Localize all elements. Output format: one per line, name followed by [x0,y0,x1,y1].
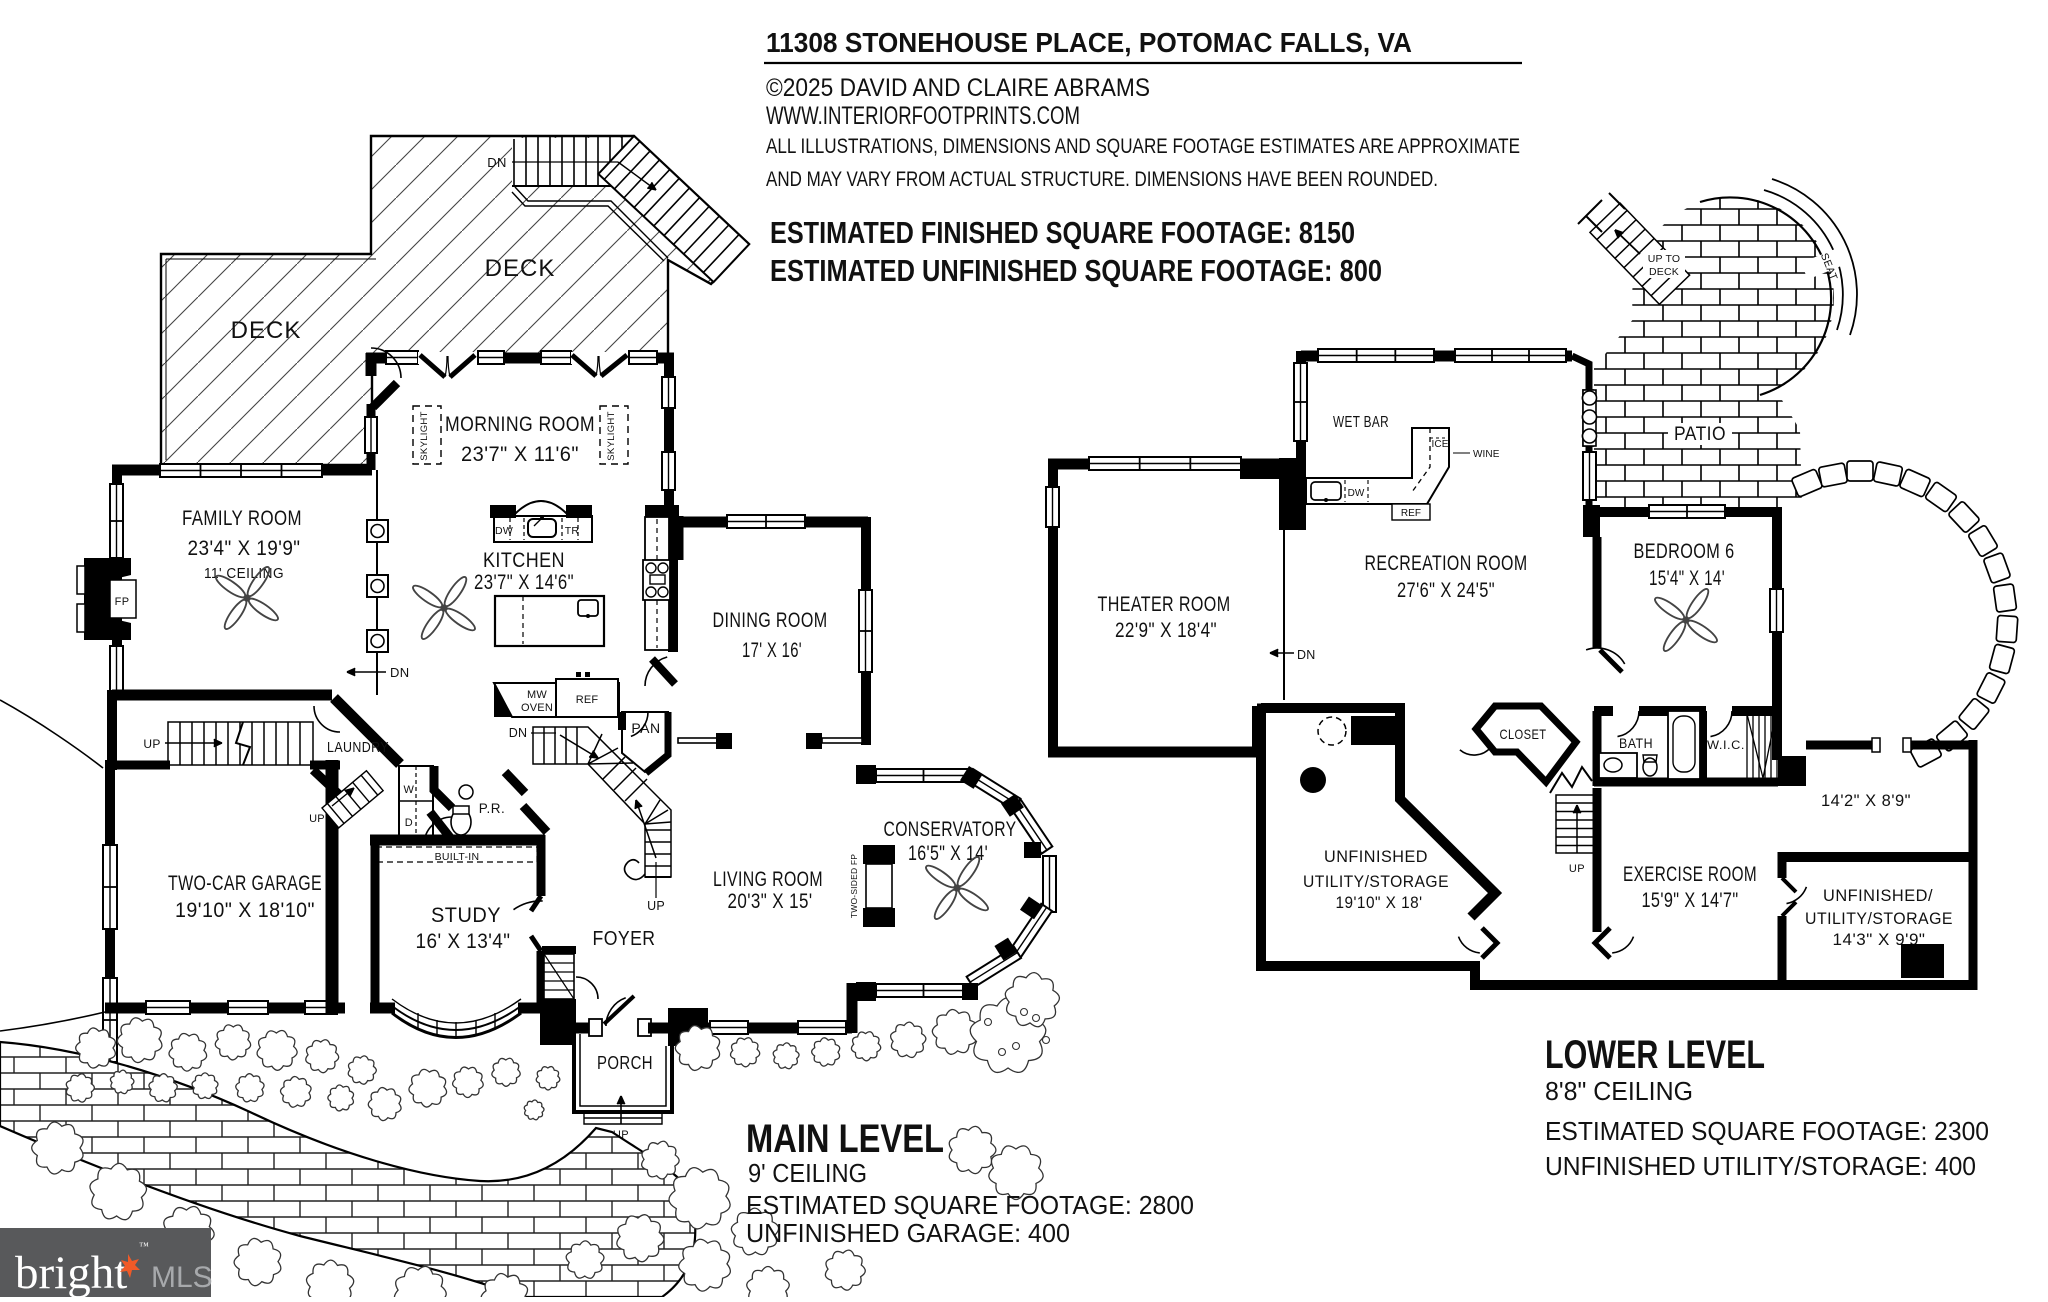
svg-text:UNFINISHED/: UNFINISHED/ [1823,887,1933,905]
svg-text:9' CEILING: 9' CEILING [748,1158,867,1188]
svg-text:ICE: ICE [1432,439,1449,450]
svg-text:FAMILY ROOM: FAMILY ROOM [182,507,302,530]
svg-text:W.I.C.: W.I.C. [1707,740,1745,752]
svg-text:WWW.INTERIORFOOTPRINTS.COM: WWW.INTERIORFOOTPRINTS.COM [766,102,1080,130]
svg-text:UNFINISHED UTILITY/STORAGE: 40: UNFINISHED UTILITY/STORAGE: 400 [1545,1151,1976,1181]
svg-text:©2025 DAVID AND CLAIRE ABRAMS: ©2025 DAVID AND CLAIRE ABRAMS [766,74,1150,102]
svg-text:CLOSET: CLOSET [1500,726,1547,742]
svg-text:LOWER LEVEL: LOWER LEVEL [1545,1033,1765,1077]
svg-text:bright: bright [15,1247,127,1297]
svg-text:16'5" X 14': 16'5" X 14' [908,842,988,865]
svg-text:UNFINISHED: UNFINISHED [1324,848,1428,866]
svg-text:PATIO: PATIO [1674,424,1726,445]
svg-text:DN: DN [487,155,506,170]
svg-text:SKYLIGHT: SKYLIGHT [419,411,430,460]
svg-text:WET BAR: WET BAR [1333,414,1389,431]
svg-text:27'6" X 24'5": 27'6" X 24'5" [1397,579,1495,602]
svg-text:LAUNDRY: LAUNDRY [327,739,389,756]
svg-text:RECREATION ROOM: RECREATION ROOM [1365,552,1528,575]
svg-text:KITCHEN: KITCHEN [483,549,565,572]
svg-text:P.R.: P.R. [479,801,506,816]
svg-text:15'4" X 14': 15'4" X 14' [1649,567,1725,590]
svg-text:THEATER ROOM: THEATER ROOM [1098,593,1231,616]
svg-text:OVEN: OVEN [521,702,553,714]
svg-text:TR: TR [565,525,580,537]
svg-text:UP: UP [309,813,325,825]
svg-text:DN: DN [390,665,409,680]
svg-text:W: W [404,784,415,796]
svg-text:16' X 13'4": 16' X 13'4" [416,930,511,953]
svg-text:DINING ROOM: DINING ROOM [713,609,828,632]
svg-text:AND MAY VARY FROM ACTUAL STRUC: AND MAY VARY FROM ACTUAL STRUCTURE. DIME… [766,167,1438,191]
svg-text:23'7" X 14'6": 23'7" X 14'6" [474,571,574,594]
svg-text:D: D [405,817,413,829]
svg-text:19'10" X 18'10": 19'10" X 18'10" [175,899,315,922]
svg-text:15'9" X 14'7": 15'9" X 14'7" [1642,889,1739,912]
svg-text:TWO-CAR GARAGE: TWO-CAR GARAGE [168,872,322,895]
svg-text:ESTIMATED FINISHED SQUARE FOOT: ESTIMATED FINISHED SQUARE FOOTAGE: 8150 [770,215,1355,250]
svg-text:DECK: DECK [485,255,556,282]
svg-text:EXERCISE ROOM: EXERCISE ROOM [1623,863,1757,886]
svg-text:DW: DW [495,525,513,537]
svg-text:ESTIMATED UNFINISHED SQUARE FO: ESTIMATED UNFINISHED SQUARE FOOTAGE: 800 [770,253,1382,288]
svg-text:UTILITY/STORAGE: UTILITY/STORAGE [1303,873,1449,891]
svg-text:23'4" X 19'9": 23'4" X 19'9" [188,537,301,560]
svg-text:UP: UP [1569,863,1585,875]
svg-text:MAIN LEVEL: MAIN LEVEL [746,1117,944,1161]
svg-text:UNFINISHED GARAGE: 400: UNFINISHED GARAGE: 400 [746,1218,1070,1248]
svg-text:17' X 16': 17' X 16' [742,639,802,662]
svg-text:DN: DN [1297,648,1315,662]
svg-text:BATH: BATH [1619,736,1653,751]
svg-text:TWO-SIDED FP: TWO-SIDED FP [849,854,859,918]
svg-text:19'10" X 18': 19'10" X 18' [1336,894,1423,912]
svg-text:WINE: WINE [1473,449,1500,460]
svg-text:™: ™ [139,1241,149,1252]
svg-text:FP: FP [115,596,130,608]
svg-text:ALL ILLUSTRATIONS, DIMENSIONS: ALL ILLUSTRATIONS, DIMENSIONS AND SQUARE… [766,134,1520,158]
svg-text:DW: DW [1348,488,1365,499]
svg-text:11308 STONEHOUSE PLACE, POTOMA: 11308 STONEHOUSE PLACE, POTOMAC FALLS, V… [766,27,1412,58]
svg-text:BUILT-IN: BUILT-IN [435,851,480,863]
svg-text:FOYER: FOYER [593,928,656,950]
svg-text:DECK: DECK [231,317,302,344]
svg-text:UP: UP [647,899,665,913]
svg-text:CONSERVATORY: CONSERVATORY [884,818,1017,841]
svg-text:DN: DN [509,726,527,740]
svg-text:MLS: MLS [151,1261,213,1294]
svg-text:LIVING ROOM: LIVING ROOM [713,868,823,891]
svg-text:8'8" CEILING: 8'8" CEILING [1545,1076,1693,1106]
svg-text:DECK: DECK [1649,266,1679,278]
svg-text:20'3" X 15': 20'3" X 15' [728,890,813,913]
svg-text:ESTIMATED SQUARE FOOTAGE: 2300: ESTIMATED SQUARE FOOTAGE: 2300 [1545,1116,1989,1146]
svg-text:UP TO: UP TO [1648,253,1681,265]
svg-text:REF: REF [576,694,599,706]
svg-text:PORCH: PORCH [597,1053,653,1073]
svg-text:UP: UP [143,737,160,751]
svg-text:BEDROOM 6: BEDROOM 6 [1634,540,1735,563]
svg-text:14'2" X 8'9": 14'2" X 8'9" [1821,792,1911,810]
svg-text:ESTIMATED SQUARE FOOTAGE: 2800: ESTIMATED SQUARE FOOTAGE: 2800 [746,1190,1194,1220]
svg-text:23'7" X 11'6": 23'7" X 11'6" [461,443,579,466]
svg-text:22'9" X 18'4": 22'9" X 18'4" [1115,619,1217,642]
svg-text:MW: MW [527,689,547,701]
svg-text:REF: REF [1401,508,1421,519]
svg-text:MORNING ROOM: MORNING ROOM [445,413,595,436]
svg-text:UTILITY/STORAGE: UTILITY/STORAGE [1805,910,1953,928]
svg-text:STUDY: STUDY [431,904,501,927]
svg-text:SKYLIGHT: SKYLIGHT [606,411,617,460]
